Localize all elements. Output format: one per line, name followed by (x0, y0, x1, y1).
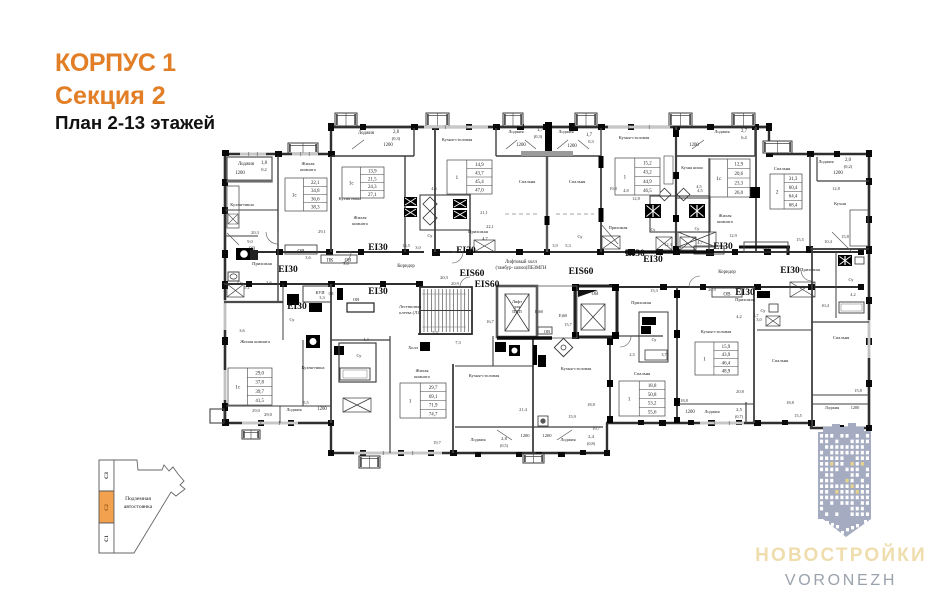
svg-text:Прихожая: Прихожая (252, 261, 273, 266)
svg-text:71,9: 71,9 (429, 404, 438, 409)
svg-text:12,9: 12,9 (735, 162, 744, 167)
svg-text:Кухня-столовая: Кухня-столовая (619, 135, 650, 140)
svg-text:клетка (Л1): клетка (Л1) (399, 310, 421, 315)
svg-text:Прихожая: Прихожая (609, 225, 628, 230)
svg-text:ЕІS60: ЕІS60 (460, 269, 485, 279)
svg-text:1с: 1с (349, 180, 355, 186)
svg-text:комната: комната (717, 219, 733, 224)
svg-text:Кухня-столовая: Кухня-столовая (561, 366, 592, 371)
svg-text:1200: 1200 (833, 171, 843, 176)
svg-text:комната: комната (300, 167, 316, 172)
svg-text:1200: 1200 (317, 407, 327, 412)
svg-text:Спальня: Спальня (772, 358, 789, 363)
svg-text:64,4: 64,4 (789, 195, 798, 200)
svg-text:Жилая комната: Жилая комната (240, 339, 270, 344)
svg-text:Су: Су (760, 308, 766, 313)
svg-text:Кухня-столовая: Кухня-столовая (701, 329, 732, 334)
svg-text:Кухня ниша: Кухня ниша (339, 196, 362, 201)
svg-text:Лестничная: Лестничная (399, 304, 421, 309)
svg-text:ОВ: ОВ (544, 329, 550, 334)
svg-text:69,1: 69,1 (429, 395, 438, 400)
svg-text:74,7: 74,7 (429, 412, 438, 417)
svg-text:43,2: 43,2 (643, 171, 652, 176)
svg-text:29,7: 29,7 (429, 386, 438, 391)
svg-text:Лоджия: Лоджия (238, 162, 255, 167)
svg-text:С3: С3 (104, 472, 110, 479)
svg-text:45,4: 45,4 (475, 180, 484, 185)
svg-text:43,7: 43,7 (475, 171, 484, 176)
svg-text:1: 1 (409, 398, 412, 404)
svg-text:Лифтовый холл: Лифтовый холл (505, 260, 538, 265)
svg-text:53,2: 53,2 (648, 402, 657, 407)
svg-text:1200: 1200 (516, 143, 526, 148)
svg-text:1200: 1200 (235, 171, 245, 176)
svg-text:Су: Су (237, 280, 243, 285)
svg-text:Прихожая: Прихожая (800, 267, 821, 272)
svg-text:41,5: 41,5 (255, 399, 264, 404)
svg-text:Лоджия: Лоджия (825, 405, 839, 410)
svg-text:27,1: 27,1 (368, 193, 377, 198)
svg-text:48,9: 48,9 (722, 370, 731, 375)
svg-text:ЕІ30: ЕІ30 (287, 302, 307, 312)
svg-text:20,6: 20,6 (735, 172, 744, 177)
svg-text:1200: 1200 (383, 143, 393, 148)
svg-text:Лоджия: Лоджия (470, 437, 486, 442)
svg-text:ОВ: ОВ (249, 247, 256, 252)
svg-text:ОВ: ОВ (592, 292, 599, 297)
svg-text:Су: Су (356, 353, 362, 358)
svg-text:Секция 2: Секция 2 (55, 82, 166, 110)
svg-text:ПК: ПК (327, 259, 334, 264)
svg-text:Спальня: Спальня (774, 166, 791, 171)
svg-text:23,3: 23,3 (735, 181, 744, 186)
svg-text:24,3: 24,3 (368, 185, 377, 190)
svg-text:31,3: 31,3 (789, 177, 798, 182)
svg-text:ЕІ30: ЕІ30 (368, 287, 388, 297)
svg-text:2,0: 2,0 (845, 158, 852, 163)
svg-text:68,4: 68,4 (789, 203, 798, 208)
svg-text:55,6: 55,6 (648, 410, 657, 415)
svg-text:50,8: 50,8 (648, 393, 657, 398)
svg-text:44,9: 44,9 (643, 180, 652, 185)
svg-text:1с: 1с (716, 176, 722, 182)
svg-text:ЕІ30: ЕІ30 (456, 246, 476, 256)
svg-text:ЕІ30: ЕІ30 (625, 249, 645, 259)
svg-text:1200: 1200 (689, 143, 699, 148)
svg-text:Лоджия: Лоджия (358, 131, 375, 136)
svg-text:2,7: 2,7 (741, 129, 748, 134)
svg-text:Подземная: Подземная (125, 496, 151, 502)
svg-text:1200: 1200 (851, 405, 860, 410)
svg-text:ОВ: ОВ (723, 292, 731, 298)
svg-text:Холл: Холл (408, 345, 419, 350)
svg-text:С1: С1 (104, 535, 110, 542)
svg-text:1,7: 1,7 (537, 128, 544, 133)
svg-text:Коридор: Коридор (397, 264, 415, 269)
svg-text:22,1: 22,1 (311, 181, 320, 186)
svg-text:Прихожая: Прихожая (631, 300, 652, 305)
svg-text:ЕІ30: ЕІ30 (643, 255, 663, 265)
svg-text:38,3: 38,3 (311, 206, 320, 211)
svg-text:Е)60: Е)60 (535, 309, 544, 314)
svg-text:Су: Су (848, 277, 854, 282)
svg-text:26,0: 26,0 (735, 191, 744, 196)
svg-text:1200: 1200 (542, 433, 552, 438)
svg-text:С2: С2 (104, 504, 110, 511)
svg-text:Су: Су (577, 234, 583, 239)
svg-text:ЕІS60: ЕІS60 (569, 267, 594, 277)
svg-text:Е)60: Е)60 (559, 313, 568, 318)
svg-text:ЕІ30: ЕІ30 (713, 242, 733, 252)
svg-text:15,9: 15,9 (722, 345, 731, 350)
svg-text:ЕІ30: ЕІ30 (368, 243, 388, 253)
svg-text:VORONEZH: VORONEZH (785, 572, 897, 589)
svg-text:Жилая: Жилая (718, 213, 732, 218)
svg-text:43,9: 43,9 (722, 353, 731, 358)
svg-text:Коридор: Коридор (718, 270, 736, 275)
svg-text:46,5: 46,5 (643, 189, 652, 194)
svg-text:ЕІS60: ЕІS60 (475, 280, 500, 290)
svg-text:1: 1 (703, 356, 706, 362)
svg-text:1200: 1200 (567, 144, 577, 149)
svg-text:ЕІ30: ЕІ30 (278, 265, 298, 275)
svg-text:ППП: ППП (512, 309, 522, 314)
svg-text:1с: 1с (292, 192, 298, 198)
svg-text:План 2-13 этажей: План 2-13 этажей (55, 112, 215, 133)
svg-text:ЕІ30: ЕІ30 (735, 288, 755, 298)
svg-text:Кухня-столовая: Кухня-столовая (469, 373, 500, 378)
svg-text:Су: Су (289, 317, 295, 322)
svg-text:29,0: 29,0 (255, 371, 264, 376)
svg-text:1,8: 1,8 (261, 161, 268, 166)
svg-text:автостоянка: автостоянка (124, 504, 153, 510)
svg-text:18,8: 18,8 (648, 384, 657, 389)
svg-text:1: 1 (624, 174, 627, 180)
svg-text:Спальня: Спальня (634, 371, 651, 376)
svg-text:1,7: 1,7 (586, 133, 593, 138)
svg-text:ЕІ30: ЕІ30 (780, 266, 800, 276)
svg-text:47,0: 47,0 (475, 188, 484, 193)
svg-text:Лоджия: Лоджия (714, 129, 730, 134)
svg-text:Лоджия: Лоджия (508, 129, 524, 134)
svg-text:Кухня-столовая: Кухня-столовая (442, 137, 473, 142)
svg-text:Жилая: Жилая (415, 368, 429, 373)
svg-text:2,8: 2,8 (393, 130, 400, 135)
svg-text:Кухня-ниша: Кухня-ниша (230, 202, 253, 207)
svg-text:Кухня: Кухня (834, 201, 847, 206)
svg-text:Кухня-ниша: Кухня-ниша (302, 365, 325, 370)
svg-text:Кухня ниша: Кухня ниша (681, 165, 703, 170)
svg-text:15,2: 15,2 (643, 161, 652, 166)
svg-text:2: 2 (776, 189, 779, 195)
svg-text:1200: 1200 (520, 433, 530, 438)
svg-text:1200: 1200 (685, 410, 695, 415)
svg-text:21,5: 21,5 (368, 177, 377, 182)
svg-text:ОВ: ОВ (353, 297, 359, 302)
svg-text:39,7: 39,7 (255, 390, 264, 395)
svg-text:37,8: 37,8 (255, 381, 264, 386)
svg-text:КОРПУС 1: КОРПУС 1 (55, 49, 176, 77)
svg-text:Спальня: Спальня (569, 179, 586, 184)
svg-text:Лоджия: Лоджия (704, 409, 720, 414)
svg-text:(тамбур- шлюз)ПБЗМГН: (тамбур- шлюз)ПБЗМГН (495, 266, 547, 271)
svg-text:1: 1 (628, 396, 631, 402)
svg-text:Спальня: Спальня (519, 179, 536, 184)
svg-text:Жилая: Жилая (301, 161, 315, 166)
svg-text:Лоджия: Лоджия (558, 129, 574, 134)
svg-text:14,9: 14,9 (475, 163, 484, 168)
svg-text:ОВ: ОВ (763, 247, 770, 252)
svg-text:Лоджия: Лоджия (818, 159, 834, 164)
svg-text:13,9: 13,9 (368, 170, 377, 175)
svg-text:Су: Су (427, 233, 433, 238)
svg-text:46,4: 46,4 (722, 361, 731, 366)
svg-text:ОВ: ОВ (297, 249, 305, 255)
svg-text:комната: комната (414, 374, 430, 379)
svg-text:Спальня: Спальня (833, 335, 850, 340)
svg-text:Лоджия: Лоджия (560, 437, 576, 442)
svg-text:комната: комната (352, 221, 368, 226)
svg-text:60,4: 60,4 (789, 186, 798, 191)
svg-text:34,8: 34,8 (311, 189, 320, 194)
svg-text:Жилая: Жилая (353, 215, 367, 220)
svg-text:1с: 1с (235, 384, 241, 390)
svg-text:36,6: 36,6 (311, 197, 320, 202)
svg-text:Лоджия: Лоджия (286, 407, 302, 412)
svg-text:НОВОСТРОЙКИ: НОВОСТРОЙКИ (755, 544, 927, 566)
svg-text:Прихожая: Прихожая (468, 229, 489, 234)
svg-text:1: 1 (456, 175, 459, 181)
